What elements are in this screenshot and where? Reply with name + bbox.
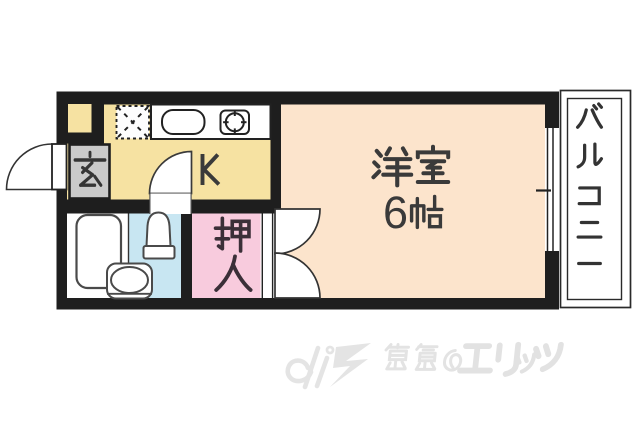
svg-text:6: 6 [383,187,408,238]
